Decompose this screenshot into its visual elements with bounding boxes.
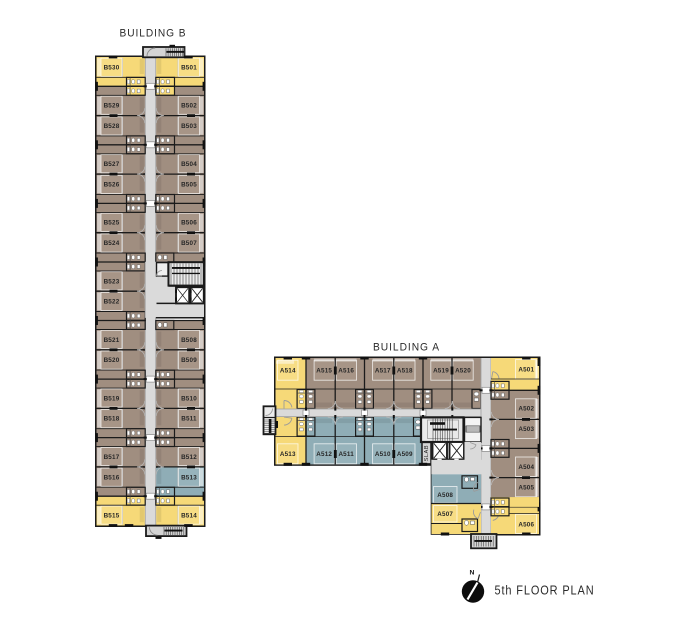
svg-text:A502: A502 bbox=[518, 406, 534, 413]
svg-text:A514: A514 bbox=[280, 367, 296, 374]
svg-text:B510: B510 bbox=[181, 395, 197, 402]
svg-text:B511: B511 bbox=[181, 416, 197, 423]
svg-text:B524: B524 bbox=[104, 240, 120, 247]
svg-text:B505: B505 bbox=[181, 182, 197, 189]
svg-text:B529: B529 bbox=[104, 103, 120, 110]
svg-text:B501: B501 bbox=[181, 64, 197, 71]
svg-text:B517: B517 bbox=[104, 454, 120, 461]
svg-text:A519: A519 bbox=[433, 367, 449, 374]
svg-text:A505: A505 bbox=[518, 484, 534, 491]
svg-text:BUILDING A: BUILDING A bbox=[373, 342, 440, 354]
svg-text:B515: B515 bbox=[104, 513, 120, 520]
svg-text:A504: A504 bbox=[518, 464, 534, 471]
svg-text:A517: A517 bbox=[375, 367, 391, 374]
svg-text:B509: B509 bbox=[181, 357, 197, 364]
svg-text:A516: A516 bbox=[338, 367, 354, 374]
svg-text:B528: B528 bbox=[104, 123, 120, 130]
svg-text:B530: B530 bbox=[104, 64, 120, 71]
svg-text:B526: B526 bbox=[104, 182, 120, 189]
svg-text:B513: B513 bbox=[181, 474, 197, 481]
svg-text:N: N bbox=[470, 570, 475, 577]
svg-text:B507: B507 bbox=[181, 240, 197, 247]
svg-text:B518: B518 bbox=[104, 416, 120, 423]
svg-text:B519: B519 bbox=[104, 395, 120, 402]
svg-text:5th FLOOR PLAN: 5th FLOOR PLAN bbox=[495, 584, 595, 598]
svg-text:B506: B506 bbox=[181, 220, 197, 227]
svg-text:B502: B502 bbox=[181, 103, 197, 110]
svg-text:A503: A503 bbox=[518, 426, 534, 433]
svg-text:B512: B512 bbox=[181, 454, 197, 461]
svg-text:A515: A515 bbox=[316, 367, 332, 374]
svg-text:SLAB: SLAB bbox=[424, 445, 430, 461]
svg-text:B525: B525 bbox=[104, 220, 120, 227]
svg-text:A509: A509 bbox=[397, 451, 413, 458]
svg-text:B521: B521 bbox=[104, 337, 120, 344]
svg-text:A507: A507 bbox=[437, 511, 453, 518]
svg-text:B516: B516 bbox=[104, 474, 120, 481]
svg-text:A510: A510 bbox=[375, 451, 391, 458]
svg-text:B522: B522 bbox=[104, 299, 120, 306]
svg-text:A506: A506 bbox=[518, 521, 534, 528]
svg-text:B503: B503 bbox=[181, 123, 197, 130]
svg-text:B523: B523 bbox=[104, 278, 120, 285]
svg-text:A508: A508 bbox=[437, 492, 453, 499]
svg-text:A520: A520 bbox=[455, 367, 471, 374]
svg-text:B514: B514 bbox=[181, 513, 197, 520]
svg-text:A511: A511 bbox=[338, 451, 354, 458]
svg-text:A518: A518 bbox=[397, 367, 413, 374]
svg-text:B520: B520 bbox=[104, 357, 120, 364]
svg-text:B504: B504 bbox=[181, 161, 197, 168]
svg-text:A513: A513 bbox=[280, 451, 296, 458]
svg-text:BUILDING B: BUILDING B bbox=[120, 28, 187, 40]
svg-text:B508: B508 bbox=[181, 337, 197, 344]
svg-text:B527: B527 bbox=[104, 161, 120, 168]
svg-text:A501: A501 bbox=[518, 367, 534, 374]
svg-text:A512: A512 bbox=[316, 451, 332, 458]
